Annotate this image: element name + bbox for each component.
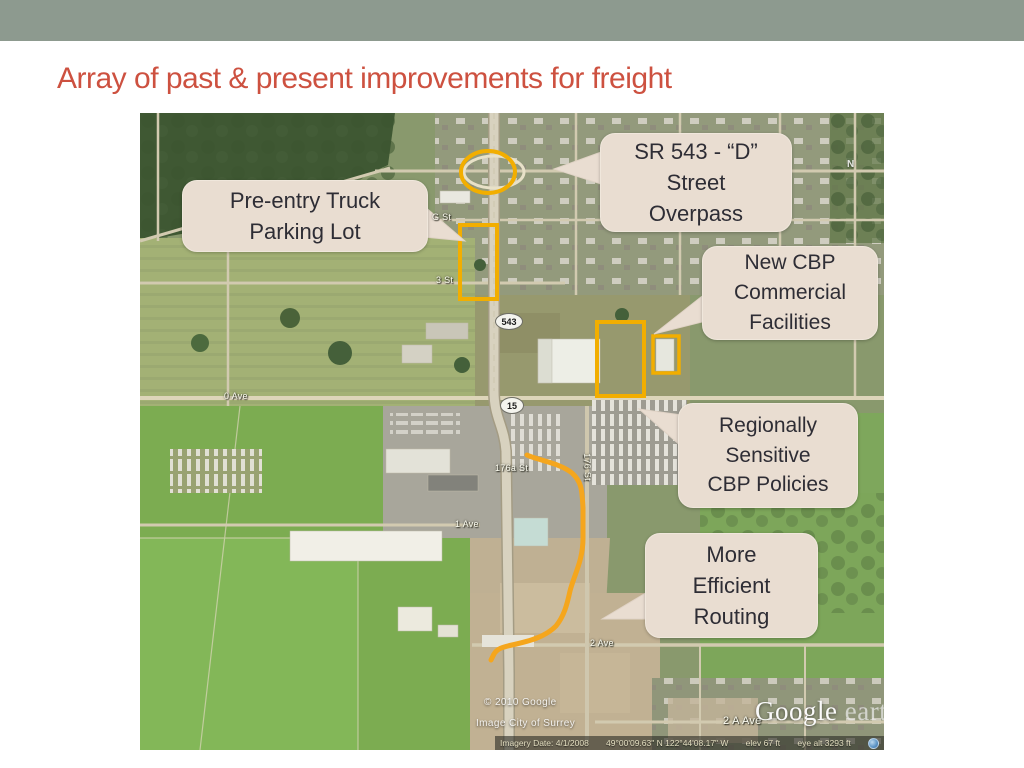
cbp-highlight-rect-large	[597, 322, 644, 396]
status-bar: Imagery Date: 4/1/2008 49°00'09.63" N 12…	[495, 736, 884, 750]
compass-north-label: N	[847, 159, 854, 170]
header-bar	[0, 0, 1024, 41]
satellite-map: SR 543 - “D” Street Overpass Pre-entry T…	[140, 113, 884, 750]
callout-pre-entry-parking: Pre-entry Truck Parking Lot	[182, 180, 428, 252]
highway-shield-543: 543	[495, 313, 523, 330]
image-credit-text: Image City of Surrey	[476, 718, 575, 729]
imagery-date-text: Imagery Date: 4/1/2008	[500, 738, 589, 748]
parking-highlight-rect	[460, 225, 497, 299]
road-label-g-st: G St	[432, 212, 451, 222]
coordinates-text: 49°00'09.63" N 122°44'08.17" W	[606, 738, 728, 748]
overpass-highlight-ellipse	[461, 151, 515, 193]
page-title: Array of past & present improvements for…	[57, 62, 672, 96]
eye-altitude-text: eye alt 3293 ft	[797, 738, 850, 748]
road-label-1-ave: 1 Ave	[455, 519, 479, 529]
road-label-176a-st: 176a St	[495, 463, 528, 473]
road-label-0-ave: 0 Ave	[224, 391, 248, 401]
road-label-2-ave: 2 Ave	[590, 638, 614, 648]
elevation-text: elev 67 ft	[746, 738, 781, 748]
callout-sr543-overpass: SR 543 - “D” Street Overpass	[600, 133, 792, 232]
highway-shield-15: 15	[500, 397, 524, 414]
earth-logo-text: earth	[845, 696, 884, 726]
callout-cbp-policies: Regionally Sensitive CBP Policies	[678, 403, 858, 508]
copyright-text: © 2010 Google	[484, 697, 557, 708]
google-logo-text: Google	[755, 696, 837, 726]
road-label-3-st: 3 St	[436, 275, 453, 285]
globe-icon	[868, 738, 879, 749]
google-earth-watermark: Google earth	[755, 696, 884, 727]
routing-path	[491, 455, 583, 660]
road-label-176-st: 176 St	[582, 453, 593, 481]
callout-new-cbp-facilities: New CBP Commercial Facilities	[702, 246, 878, 340]
cbp-highlight-rect-small	[653, 336, 679, 373]
callout-efficient-routing: More Efficient Routing	[645, 533, 818, 638]
